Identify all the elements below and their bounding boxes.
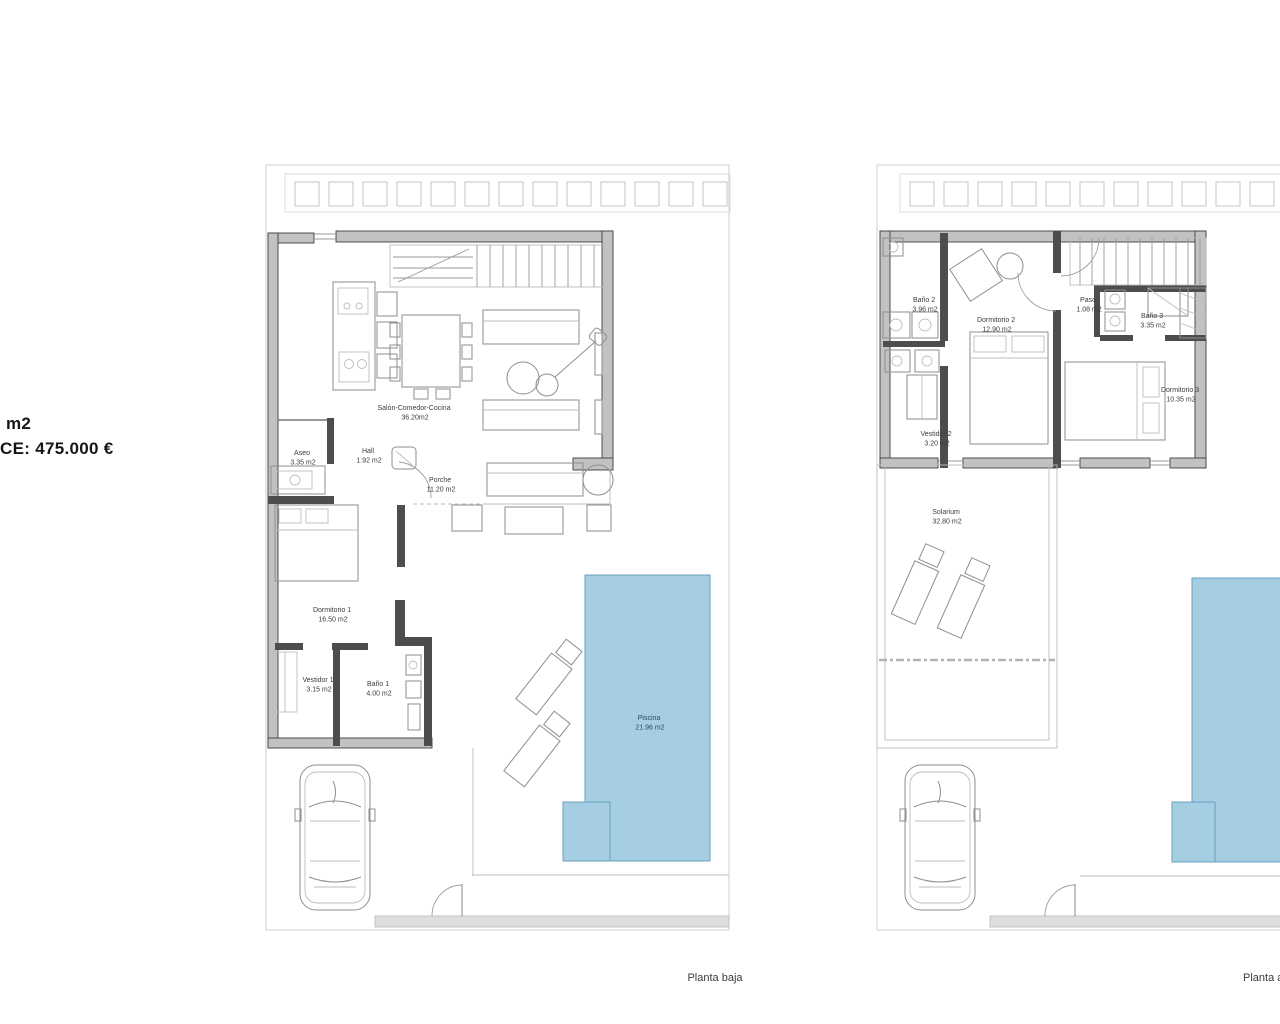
upper-pool <box>1172 578 1280 862</box>
staircase <box>390 245 605 287</box>
room-label-bano1: Baño 1 4.00 m2 <box>366 681 391 698</box>
upper-entrance <box>990 876 1280 927</box>
bedroom3-bed <box>1065 362 1165 440</box>
price-line-amount: CE: 475.000 € <box>0 439 114 459</box>
room-label-porche: Porche 11.20 m2 <box>427 477 456 494</box>
living-room-furniture <box>483 310 608 434</box>
room-label-solarium: Solarium 32.80 m2 <box>932 509 962 526</box>
caption-planta-alta: Planta alta <box>1243 972 1280 984</box>
hall-door <box>392 447 431 498</box>
price-line-m2: m2 <box>6 414 31 434</box>
bedroom1-bed <box>275 505 358 581</box>
room-label-vestidor2: Vestidor 2 3.20 m2 <box>920 431 953 448</box>
kitchen-island <box>333 282 397 390</box>
room-label-bano3: Baño 3 3.35 m2 <box>1140 313 1165 330</box>
floor-plan-page: m2 CE: 475.000 € <box>0 0 1280 1024</box>
vestidor2-closet <box>907 375 937 419</box>
ground-floor-plan: Salón-Comedor-Cocina 36.20m2 Aseo 3.35 m… <box>265 160 735 935</box>
bedroom2-furniture <box>950 249 1048 444</box>
bedroom2-door-arc <box>1018 273 1056 311</box>
dining-table <box>390 315 472 399</box>
aseo-fixtures <box>271 466 325 494</box>
ground-pool <box>563 575 710 861</box>
room-label-bano2: Baño 2 3.96 m2 <box>912 297 937 314</box>
upper-pergola-strip <box>900 174 1280 212</box>
room-label-vestidor1: Vestidor 1 3.15 m2 <box>302 677 335 694</box>
upper-floor-plan: Baño 2 3.96 m2 Dormitorio 2 12.90 m2 Pas… <box>875 160 1280 935</box>
room-label-dormitorio2: Dormitorio 2 12.90 m2 <box>977 317 1017 334</box>
ground-pergola-strip <box>285 174 730 212</box>
room-label-dormitorio1: Dormitorio 1 16.50 m2 <box>313 607 353 624</box>
porch-furniture <box>413 463 613 534</box>
room-label-salon: Salón-Comedor-Cocina 36.20m2 <box>377 405 452 422</box>
room-label-hall: Hall 1.92 m2 <box>356 448 381 465</box>
ground-interior-walls <box>268 418 432 746</box>
bathroom2-fixtures <box>883 238 939 372</box>
bathroom1-fixtures <box>406 655 421 730</box>
room-label-aseo: Aseo 3.35 m2 <box>290 450 315 467</box>
caption-planta-baja: Planta baja <box>650 972 780 984</box>
